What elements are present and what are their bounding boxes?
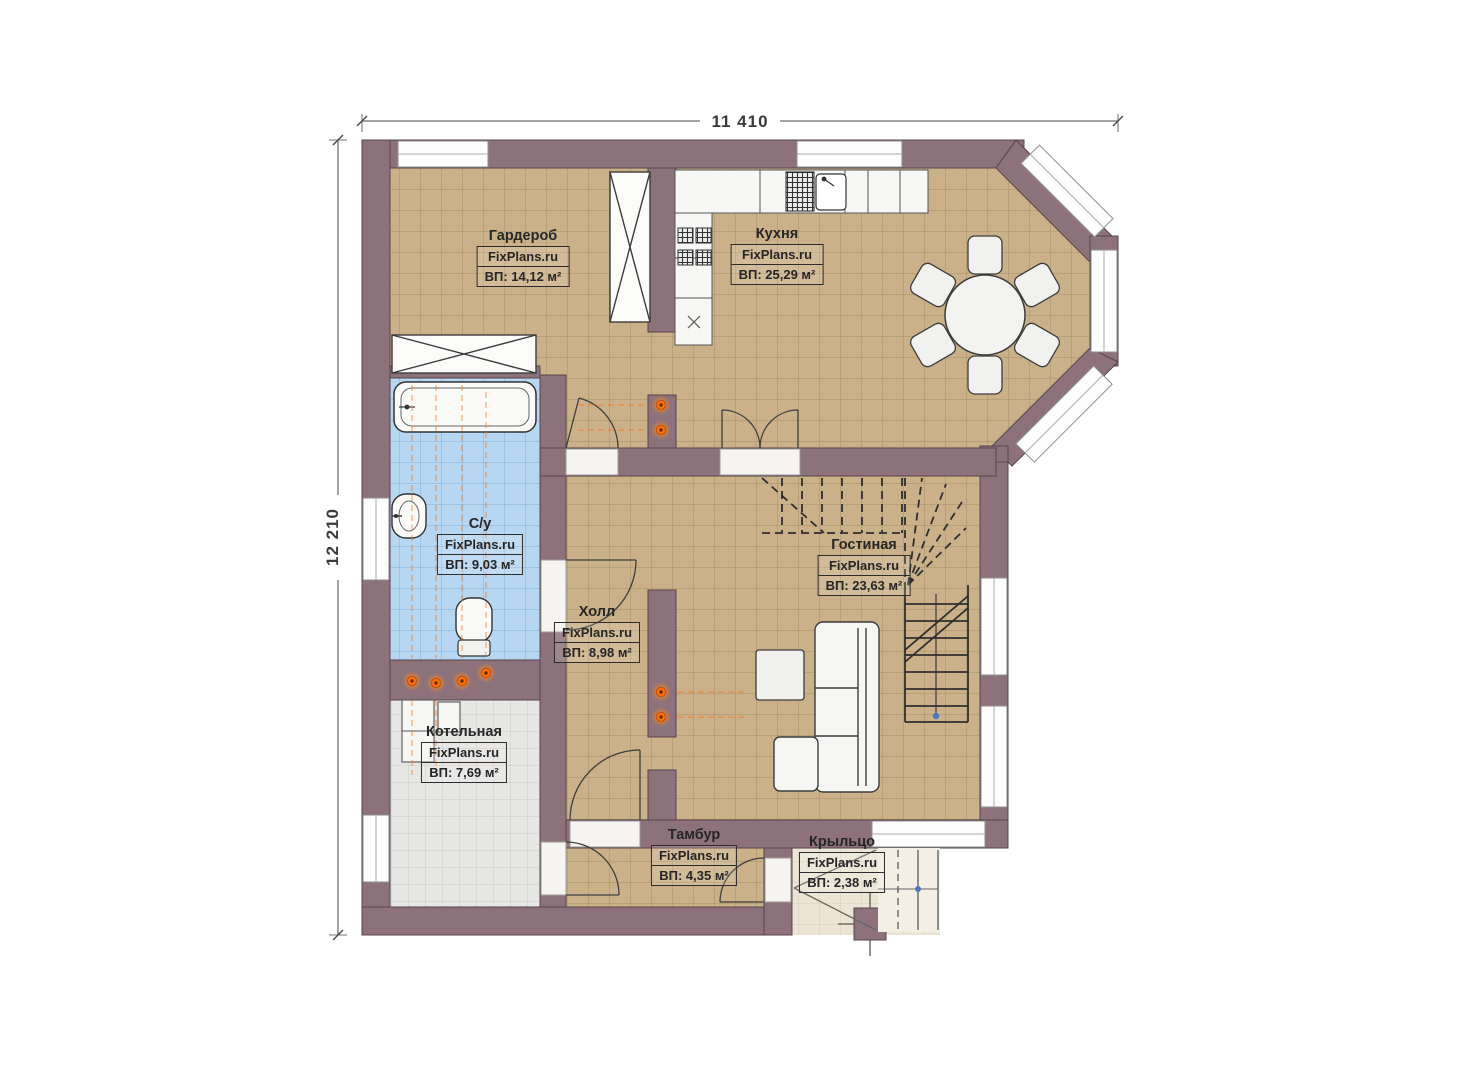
- sill-kitchen-double-door: [720, 449, 800, 475]
- room-label-boiler: Котельная FixPlans.ru ВП: 7,69 м²: [421, 724, 507, 783]
- window-top-kitchen: [797, 141, 902, 167]
- room-label-hall: Холл FixPlans.ru ВП: 8,98 м²: [554, 604, 640, 663]
- room-area: ВП: 8,98 м²: [555, 642, 639, 662]
- room-label-living: Гостиная FixPlans.ru ВП: 23,63 м²: [818, 537, 911, 596]
- wall-wardrobe-kitchen: [648, 168, 676, 332]
- room-name: Крыльцо: [799, 834, 885, 850]
- room-name: Гостиная: [818, 537, 911, 553]
- room-name: Тамбур: [651, 827, 737, 843]
- room-label-kitchen: Кухня FixPlans.ru ВП: 25,29 м²: [731, 226, 824, 285]
- radiator-icon: [651, 707, 671, 727]
- room-label-bathroom: С/у FixPlans.ru ВП: 9,03 м²: [437, 516, 523, 575]
- wall-lower-stub: [648, 770, 676, 820]
- room-label-porch: Крыльцо FixPlans.ru ВП: 2,38 м²: [799, 834, 885, 893]
- window-bay-right: [1091, 250, 1117, 352]
- room-area: ВП: 25,29 м²: [732, 264, 823, 284]
- room-info-box: FixPlans.ru ВП: 9,03 м²: [437, 534, 523, 575]
- room-info-box: FixPlans.ru ВП: 25,29 м²: [731, 244, 824, 285]
- watermark-text: FixPlans.ru: [652, 846, 736, 865]
- room-info-box: FixPlans.ru ВП: 7,69 м²: [421, 742, 507, 783]
- radiator-icon: [651, 420, 671, 440]
- room-info-box: FixPlans.ru ВП: 8,98 м²: [554, 622, 640, 663]
- floor-plan-page: 11 410 12 210 Гардероб FixPlans.ru ВП: 1…: [0, 0, 1473, 1080]
- room-info-box: FixPlans.ru ВП: 23,63 м²: [818, 555, 911, 596]
- kitchen-sink-icon: [786, 172, 846, 211]
- room-label-wardrobe: Гардероб FixPlans.ru ВП: 14,12 м²: [477, 228, 570, 287]
- watermark-text: FixPlans.ru: [732, 245, 823, 264]
- coffee-table: [756, 650, 804, 700]
- bathtub: [394, 382, 536, 432]
- radiator-icon: [651, 682, 671, 702]
- room-area: ВП: 9,03 м²: [438, 554, 522, 574]
- dimension-height-label: 12 210: [323, 508, 342, 566]
- room-name: Котельная: [421, 724, 507, 740]
- watermark-text: FixPlans.ru: [819, 556, 910, 575]
- closet-wide: [392, 335, 536, 373]
- window-living-right-1: [981, 578, 1007, 675]
- round-table: [945, 275, 1025, 355]
- valve-icon: [476, 663, 496, 683]
- room-info-box: FixPlans.ru ВП: 4,35 м²: [651, 845, 737, 886]
- valve-icon: [452, 671, 472, 691]
- room-area: ВП: 23,63 м²: [819, 575, 910, 595]
- room-area: ВП: 14,12 м²: [478, 266, 569, 286]
- bathroom-sink: [392, 494, 426, 538]
- wall-bottom: [362, 907, 792, 935]
- floor-plan-svg: 11 410 12 210: [0, 0, 1473, 1080]
- watermark-text: FixPlans.ru: [800, 853, 884, 872]
- sill-wardrobe-door: [566, 449, 618, 475]
- watermark-text: FixPlans.ru: [478, 247, 569, 266]
- porch-marker-dot: [915, 886, 921, 892]
- room-area: ВП: 4,35 м²: [652, 865, 736, 885]
- window-top-left: [398, 141, 488, 167]
- dining-chair: [968, 236, 1002, 274]
- watermark-text: FixPlans.ru: [438, 535, 522, 554]
- room-info-box: FixPlans.ru ВП: 2,38 м²: [799, 852, 885, 893]
- watermark-text: FixPlans.ru: [555, 623, 639, 642]
- room-name: Кухня: [731, 226, 824, 242]
- sill-hall-tambour-door: [570, 821, 640, 847]
- valve-icon: [402, 671, 422, 691]
- room-name: С/у: [437, 516, 523, 532]
- window-living-bottom: [872, 821, 985, 847]
- valve-icon: [426, 673, 446, 693]
- sill-entrance-door: [765, 858, 791, 902]
- radiator-icon: [651, 395, 671, 415]
- window-left-lower: [363, 815, 389, 882]
- watermark-text: FixPlans.ru: [422, 743, 506, 762]
- stairs-direction-dot: [933, 713, 939, 719]
- room-name: Холл: [554, 604, 640, 620]
- room-name: Гардероб: [477, 228, 570, 244]
- room-area: ВП: 7,69 м²: [422, 762, 506, 782]
- room-info-box: FixPlans.ru ВП: 14,12 м²: [477, 246, 570, 287]
- closet-tall: [610, 172, 650, 322]
- window-left-upper: [363, 498, 389, 580]
- room-label-tambour: Тамбур FixPlans.ru ВП: 4,35 м²: [651, 827, 737, 886]
- dimension-width-label: 11 410: [711, 112, 768, 131]
- window-living-right-2: [981, 706, 1007, 807]
- dining-chair: [968, 356, 1002, 394]
- room-area: ВП: 2,38 м²: [800, 872, 884, 892]
- sill-boiler-tambour-door: [541, 842, 566, 895]
